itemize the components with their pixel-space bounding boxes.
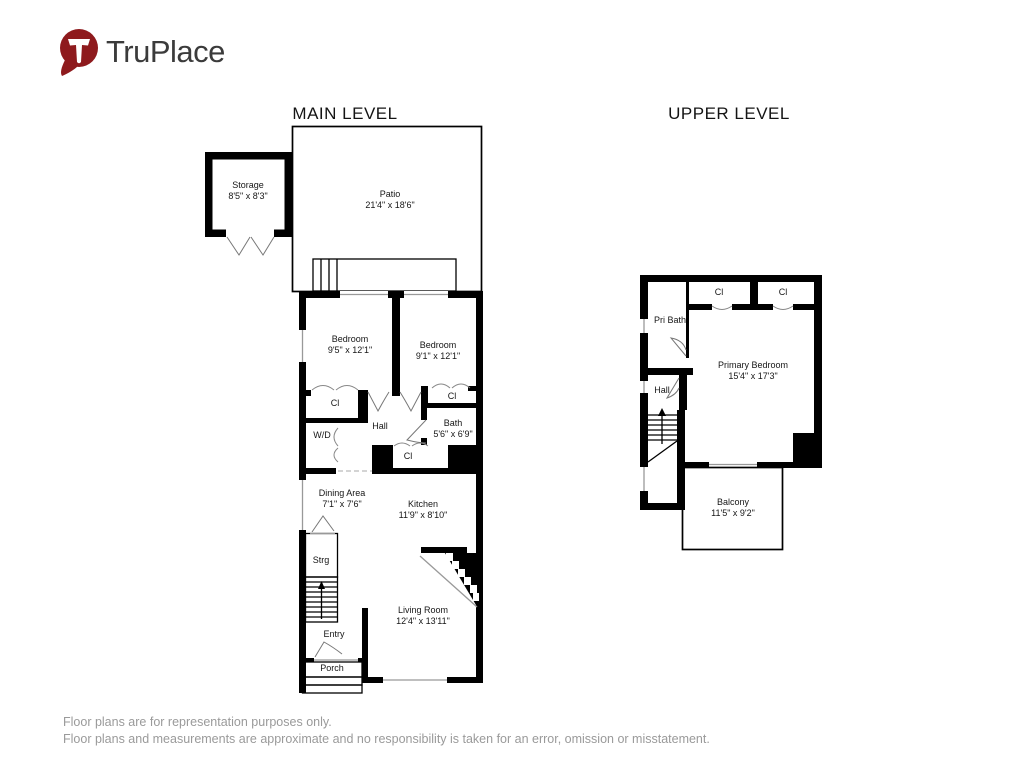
bedroom-corner-chase — [793, 433, 814, 468]
room-label-patio: Patio 21'4" x 18'6" — [365, 189, 414, 211]
disclaimer-line-2: Floor plans and measurements are approxi… — [63, 731, 710, 748]
room-label-kitchen: Kitchen 11'9" x 8'10" — [399, 499, 448, 521]
room-label-entry: Entry — [323, 629, 344, 640]
room-label-closet-left: Cl — [331, 398, 340, 409]
room-label-strg: Strg — [313, 555, 330, 566]
kitchen-corner-stairs — [420, 553, 479, 607]
room-label-dining: Dining Area 7'1" x 7'6" — [319, 488, 366, 510]
main-stairs — [306, 577, 338, 622]
disclaimer: Floor plans are for representation purpo… — [63, 714, 710, 748]
room-label-closet-hall: Cl — [404, 451, 413, 462]
room-label-primary-bedroom: Primary Bedroom 15'4" x 17'3" — [718, 360, 788, 382]
floor-plan-page: TruPlace MAIN LEVEL UPPER LEVEL — [0, 0, 1024, 768]
storage-double-door — [227, 237, 274, 255]
strg-closet-outline — [306, 516, 338, 577]
room-label-upper-closet-left: Cl — [715, 287, 724, 298]
room-label-balcony: Balcony 11'5" x 9'2" — [711, 497, 755, 519]
room-label-hall: Hall — [372, 421, 388, 432]
room-label-porch: Porch — [320, 663, 344, 674]
room-label-bedroom-left: Bedroom 9'5" x 12'1" — [328, 334, 372, 356]
room-label-living: Living Room 12'4" x 13'11" — [396, 605, 450, 627]
upper-stairs — [648, 408, 677, 462]
floor-plan-drawing — [0, 0, 1024, 768]
room-label-pri-bath: Pri Bath — [654, 315, 686, 326]
room-label-bath: Bath 5'6" x 6'9" — [433, 418, 472, 440]
room-label-upper-closet-right: Cl — [779, 287, 788, 298]
room-label-upper-hall: Hall — [654, 385, 670, 396]
room-label-closet-right: Cl — [448, 391, 457, 402]
disclaimer-line-1: Floor plans are for representation purpo… — [63, 714, 710, 731]
room-label-bedroom-right: Bedroom 9'1" x 12'1" — [416, 340, 460, 362]
storage-outline — [205, 152, 292, 255]
room-label-storage: Storage 8'5" x 8'3" — [228, 180, 267, 202]
room-label-washer-dryer: W/D — [313, 430, 331, 441]
